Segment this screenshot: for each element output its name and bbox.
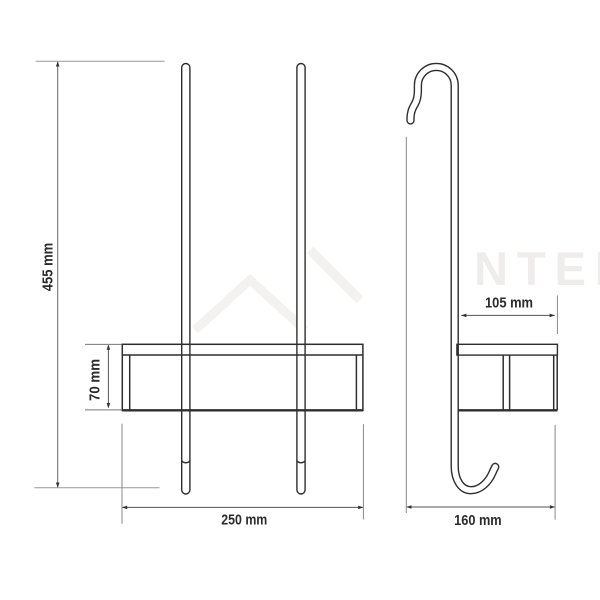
svg-text:250 mm: 250 mm (221, 511, 267, 528)
svg-text:70 mm: 70 mm (86, 359, 103, 401)
svg-text:NTEF: NTEF (474, 242, 600, 295)
svg-text:160 mm: 160 mm (454, 512, 502, 529)
svg-text:105 mm: 105 mm (485, 294, 533, 311)
svg-text:455 mm: 455 mm (40, 243, 57, 292)
